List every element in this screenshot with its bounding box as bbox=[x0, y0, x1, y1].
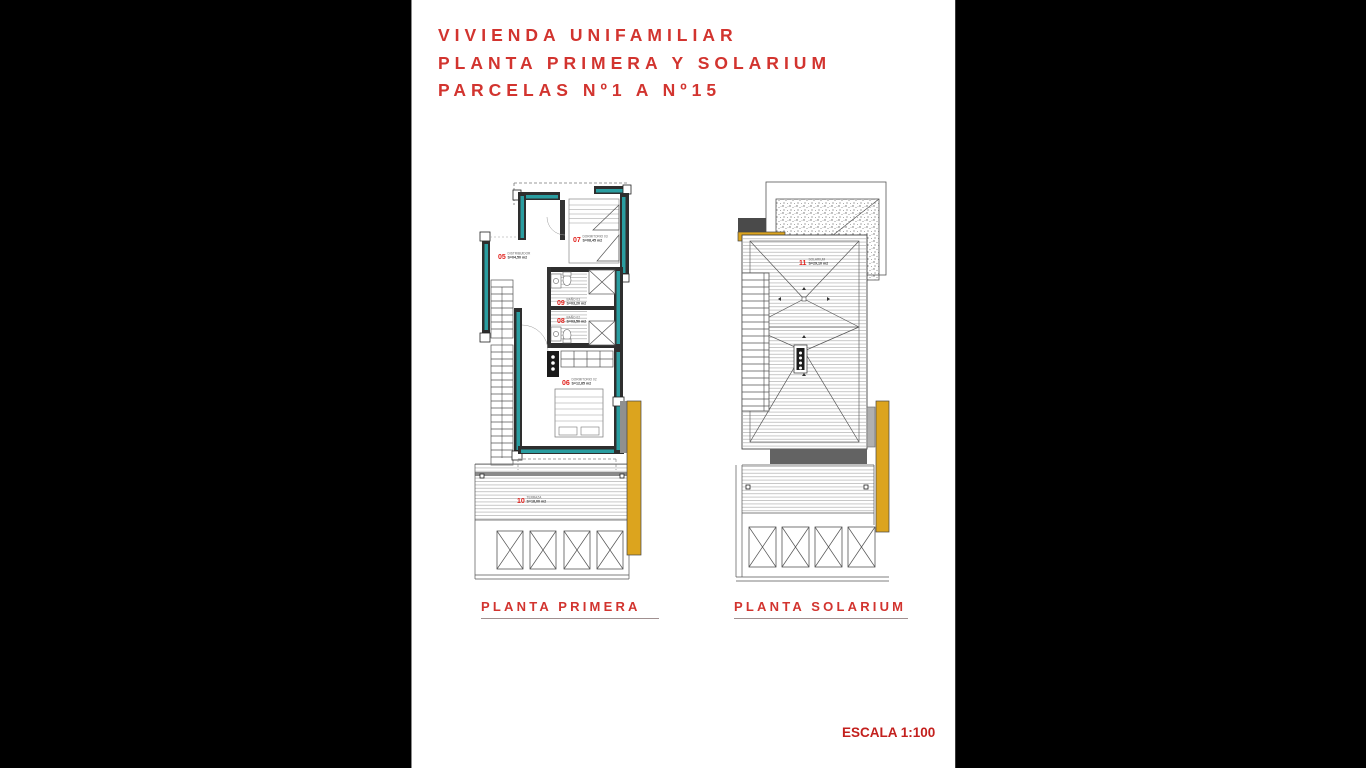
drawing-paper: VIVIENDA UNIFAMILIAR PLANTA PRIMERA Y SO… bbox=[411, 0, 956, 768]
bathrooms-group bbox=[547, 267, 623, 348]
scale-label: ESCALA 1:100 bbox=[842, 725, 935, 740]
svg-text:S=29,10 m2: S=29,10 m2 bbox=[809, 262, 829, 266]
staircase bbox=[742, 273, 769, 411]
svg-text:06: 06 bbox=[562, 380, 570, 387]
sheet-title-line-2: PLANTA PRIMERA Y SOLARIUM bbox=[438, 50, 831, 78]
plan-title-solarium: PLANTA SOLARIUM bbox=[734, 599, 908, 619]
floor-plan-solarium-drawing: 11 SOLARIUM S=29,10 m2 bbox=[726, 177, 913, 594]
svg-text:09: 09 bbox=[557, 300, 565, 307]
room-label-dormitorio-02: 06 DORMITORIO 02 S=12,85 m2 bbox=[562, 378, 597, 388]
bed-dormitorio-03 bbox=[569, 199, 619, 263]
svg-text:S=18,00 m2: S=18,00 m2 bbox=[527, 500, 547, 504]
svg-text:S=03,50 m2: S=03,50 m2 bbox=[567, 320, 587, 324]
svg-text:S=12,85 m2: S=12,85 m2 bbox=[572, 382, 592, 386]
svg-text:11: 11 bbox=[799, 260, 807, 267]
floor-plan-primera-drawing: 05 DISTRIBUIDOR S=04,50 m2 07 DORMITORIO… bbox=[461, 175, 663, 595]
svg-text:05: 05 bbox=[498, 254, 506, 261]
plan-title-primera: PLANTA PRIMERA bbox=[481, 599, 659, 619]
sheet-title-block: VIVIENDA UNIFAMILIAR PLANTA PRIMERA Y SO… bbox=[438, 22, 831, 105]
staircase bbox=[491, 280, 513, 465]
svg-text:S=03,20 m2: S=03,20 m2 bbox=[567, 302, 587, 306]
drawing-sheet-viewport: VIVIENDA UNIFAMILIAR PLANTA PRIMERA Y SO… bbox=[0, 0, 1366, 768]
svg-text:07: 07 bbox=[573, 237, 581, 244]
chimney bbox=[794, 345, 807, 373]
sheet-title-line-3: PARCELAS Nº1 A Nº15 bbox=[438, 77, 831, 105]
sheet-title-line-1: VIVIENDA UNIFAMILIAR bbox=[438, 22, 831, 50]
svg-text:10: 10 bbox=[517, 498, 525, 505]
svg-text:S=04,50 m2: S=04,50 m2 bbox=[508, 256, 528, 260]
pergola-panels bbox=[497, 531, 623, 569]
svg-text:08: 08 bbox=[557, 318, 565, 325]
room-label-distribuidor: 05 DISTRIBUIDOR S=04,50 m2 bbox=[498, 252, 531, 262]
svg-text:S=08,45 m2: S=08,45 m2 bbox=[583, 239, 603, 243]
pergola-panels bbox=[749, 527, 875, 567]
